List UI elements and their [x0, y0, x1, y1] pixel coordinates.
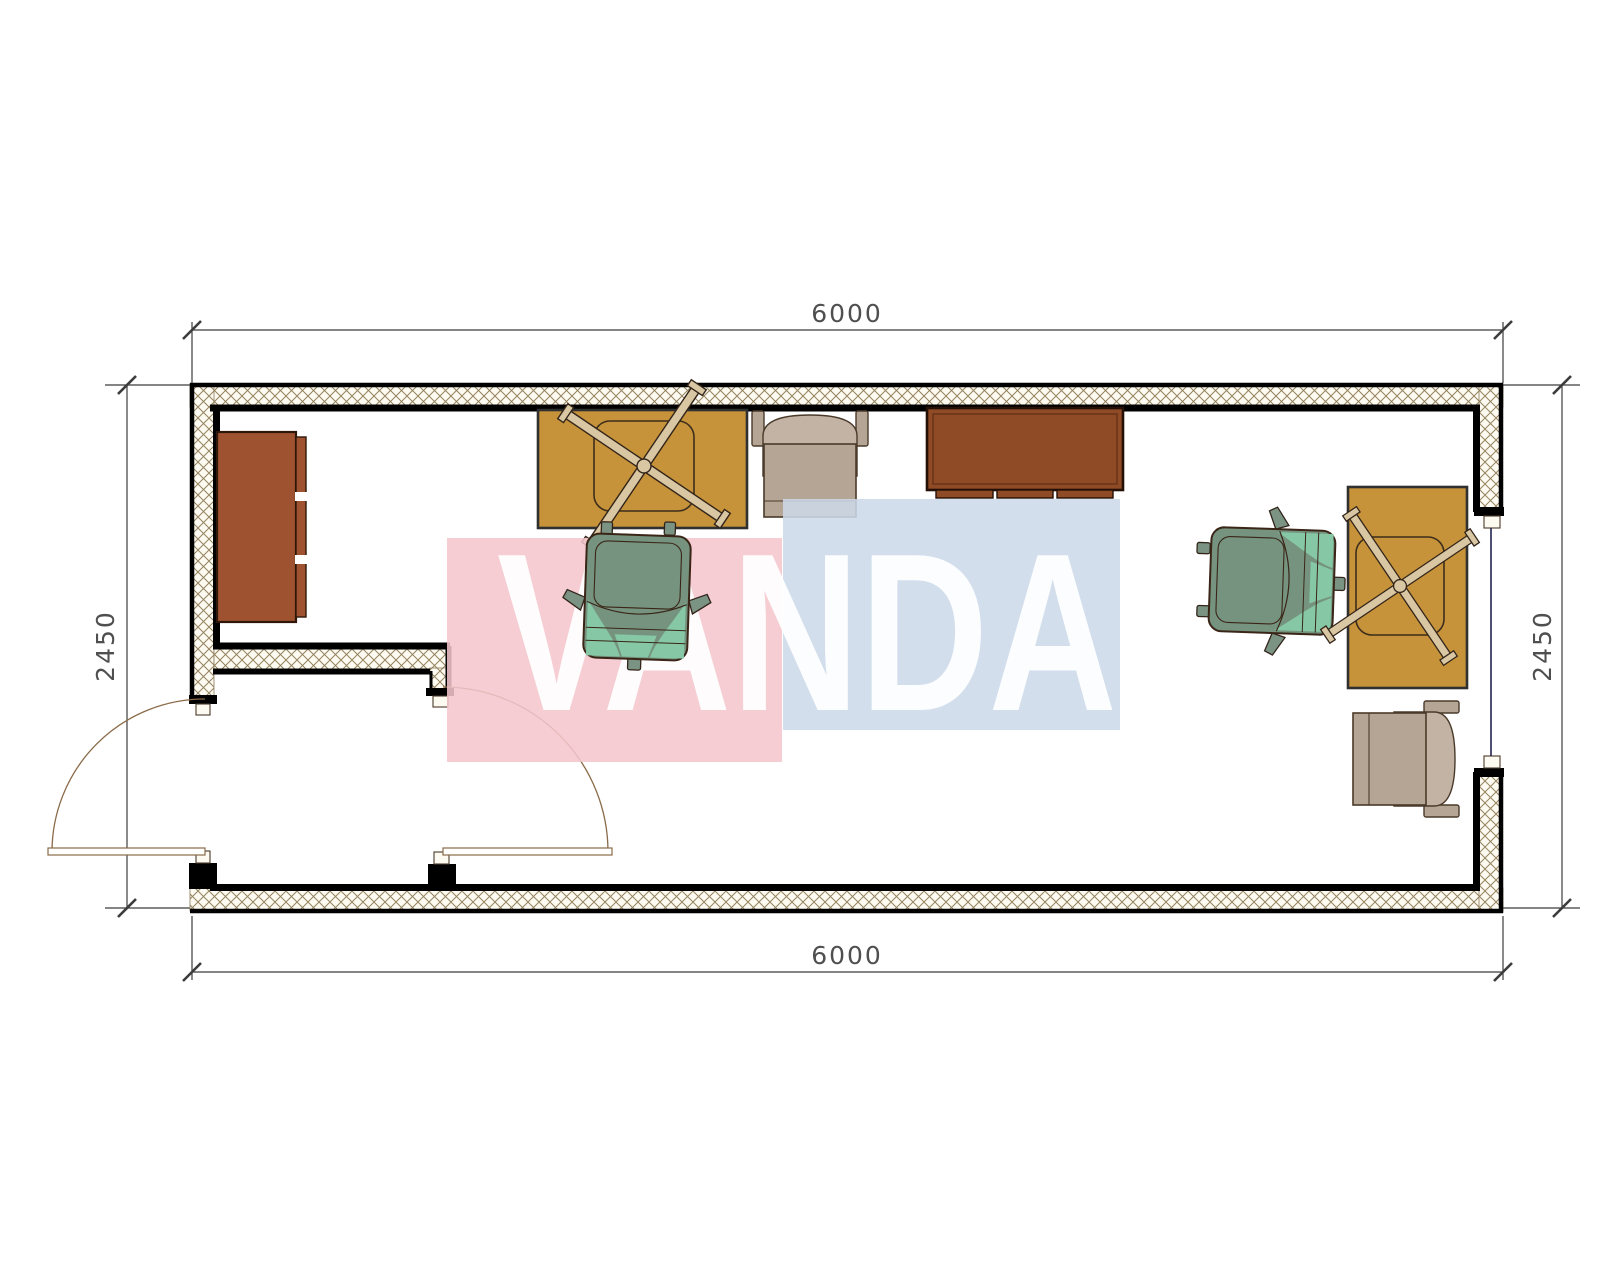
dim-label-top: 6000	[811, 299, 883, 328]
watermark: VANDA	[447, 499, 1120, 762]
door-leaf-left	[48, 848, 205, 855]
door-leaf-right	[443, 848, 612, 855]
wardrobe-shelf-gap	[295, 555, 307, 564]
armchair-bottom-right	[1353, 701, 1459, 817]
dim-label-right: 2450	[1528, 610, 1557, 682]
wardrobe-door-strip	[296, 437, 306, 617]
wardrobe-body	[217, 432, 296, 622]
floor-plan-page: 6000 6000 2450 2450	[0, 0, 1600, 1280]
top-dim-extensions	[192, 322, 1503, 383]
wardrobe-shelf-gap	[295, 492, 307, 501]
sideboard-feet	[936, 490, 1113, 498]
sideboard-top	[927, 408, 1123, 498]
wardrobe-left	[217, 432, 307, 622]
sideboard-body	[927, 408, 1123, 490]
dim-label-bottom: 6000	[811, 941, 883, 970]
floor-plan-canvas: 6000 6000 2450 2450	[0, 0, 1600, 1280]
dim-label-left: 2450	[91, 610, 120, 682]
door-swing-arc-left	[52, 699, 205, 852]
